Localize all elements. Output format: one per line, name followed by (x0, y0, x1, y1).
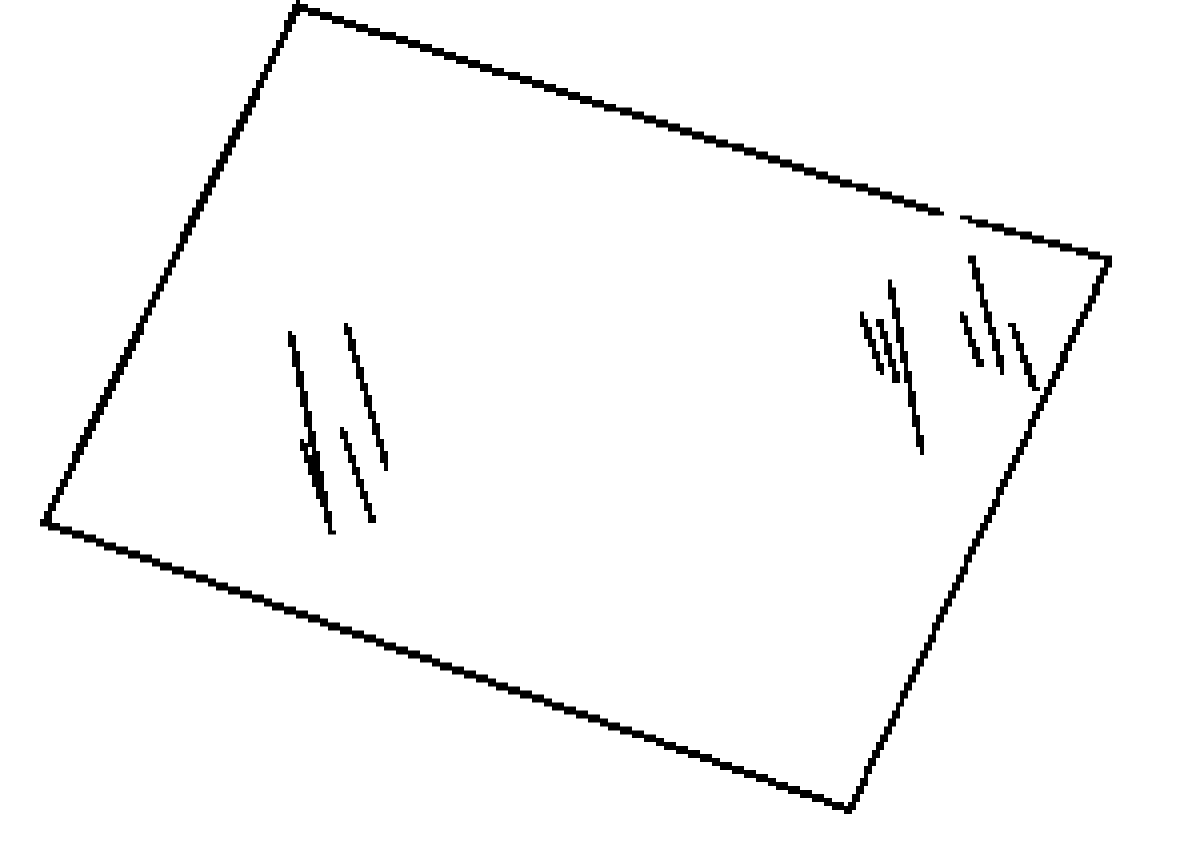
glass-pane-figure (0, 0, 1200, 842)
glass-pane-drawing (0, 0, 1200, 842)
illustration-page (0, 0, 1200, 842)
